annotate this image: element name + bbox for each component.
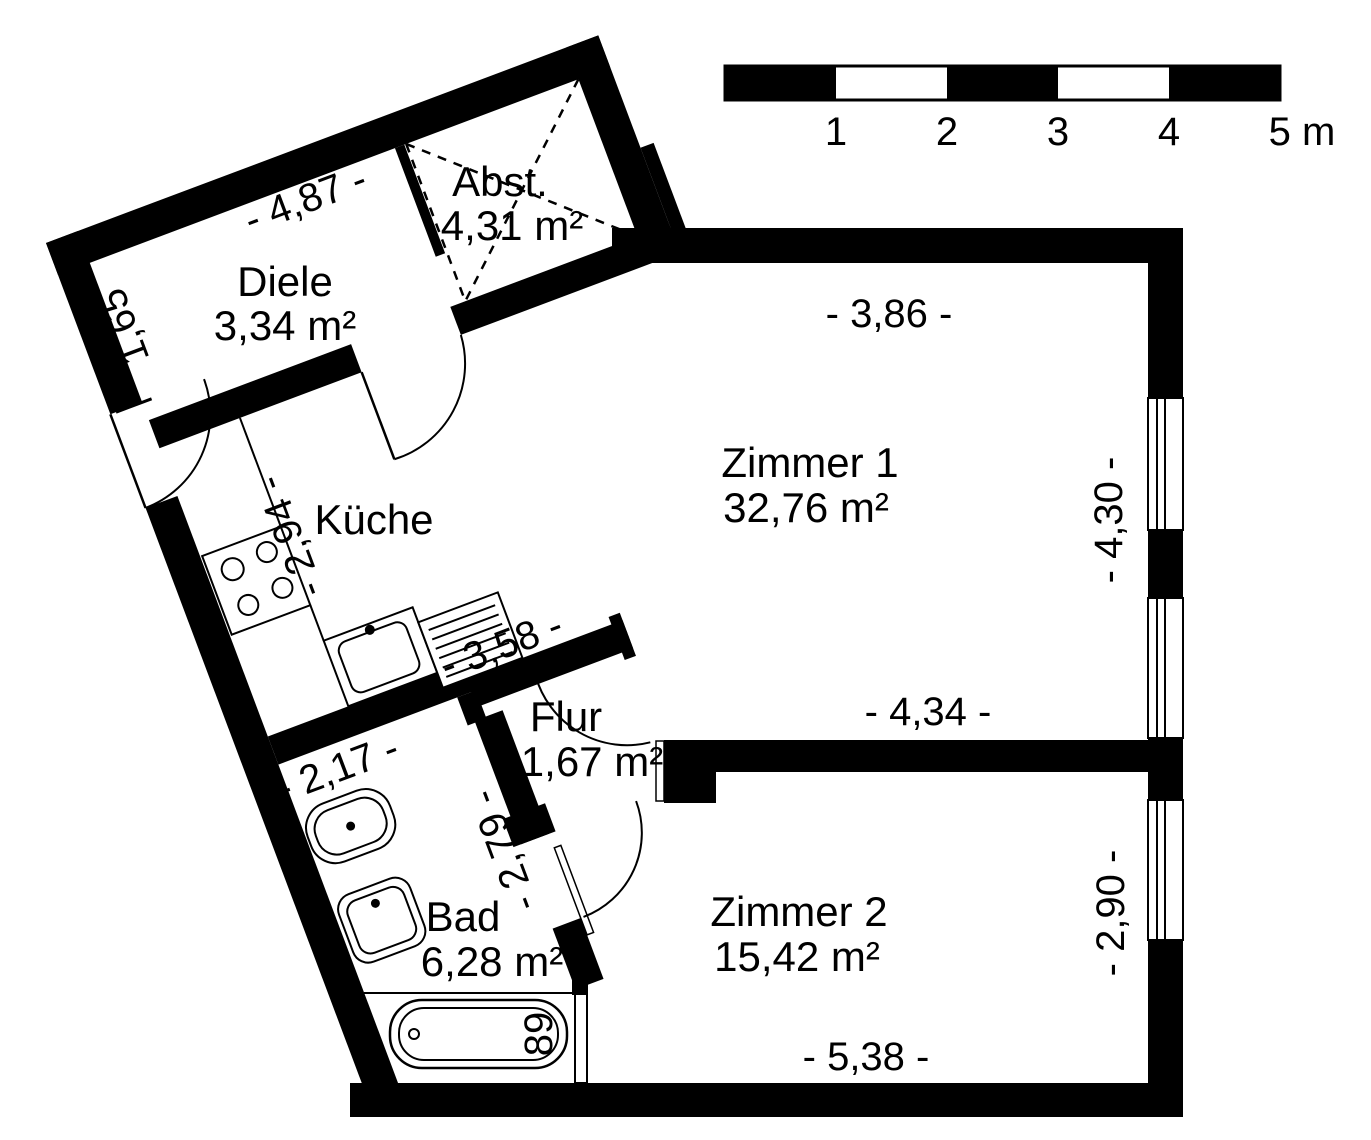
dim-zimmer1-bottom: - 4,34 - [865, 690, 992, 734]
washbasin-dot [371, 899, 380, 908]
scale-label-3: 3 [1047, 110, 1069, 154]
scale-label-2: 2 [936, 110, 958, 154]
room-area-diele: 3,34 m² [214, 302, 356, 349]
scale-label-5m: 5 m [1269, 110, 1336, 154]
room-label-diele: Diele [237, 258, 333, 305]
dim-zimmer1-top: - 3,86 - [826, 292, 953, 336]
room-label-kueche: Küche [314, 496, 433, 543]
room-area-flur: 1,67 m² [521, 738, 663, 785]
scale-bar-segment [947, 66, 1058, 100]
niche-partition-cap [572, 977, 588, 995]
dim-zimmer1-right: - 4,30 - [1087, 457, 1131, 584]
dim-zimmer2-bottom: - 5,38 - [803, 1035, 930, 1079]
door-leaf [362, 372, 395, 459]
scale-bar: 1 2 3 4 5 m [725, 66, 1335, 154]
windows-right-wall [1148, 398, 1183, 940]
room-label-zimmer1: Zimmer 1 [721, 439, 898, 486]
door-leaf [110, 414, 145, 508]
door-swing-arc [552, 801, 668, 917]
wall-diele-kueche [149, 344, 362, 448]
window-zimmer2 [1148, 800, 1183, 940]
room-area-abst: 4,31 m² [441, 202, 583, 249]
counter-edge [310, 605, 323, 641]
scale-label-4: 4 [1158, 110, 1180, 154]
room-area-bad: 6,28 m² [421, 938, 563, 985]
floorplan-page: 1 2 3 4 5 m [0, 0, 1371, 1140]
wall-divider-zimmer1-zimmer2 [664, 740, 1148, 772]
door-swing-arc [362, 335, 494, 460]
wall-zimmer1-top [612, 228, 1183, 263]
toilet-dot [346, 822, 355, 831]
room-area-zimmer2: 15,42 m² [714, 933, 880, 980]
scale-label-1: 1 [825, 110, 847, 154]
dim-bathtub-width: 89 [517, 1012, 561, 1057]
room-label-flur: Flur [530, 693, 602, 740]
wall-divider-block [664, 740, 716, 803]
room-label-bad: Bad [426, 893, 501, 940]
scale-bar-segment [725, 66, 836, 100]
scale-bar-segment [1169, 66, 1280, 100]
floorplan-drawing: 1 2 3 4 5 m [0, 0, 1371, 1140]
window-zimmer1-upper [1148, 398, 1183, 530]
window-zimmer1-lower [1148, 598, 1183, 738]
bathtub-drain [409, 1029, 419, 1039]
kueche-door [362, 335, 494, 460]
room-label-abst: Abst. [452, 158, 548, 205]
room-label-zimmer2: Zimmer 2 [710, 888, 887, 935]
bad-door [549, 801, 674, 935]
wall-bottom [350, 1083, 1183, 1117]
dim-zimmer2-right: - 2,90 - [1089, 850, 1133, 977]
wall-diele-abst-partition [395, 145, 445, 257]
room-area-zimmer1: 32,76 m² [723, 484, 889, 531]
